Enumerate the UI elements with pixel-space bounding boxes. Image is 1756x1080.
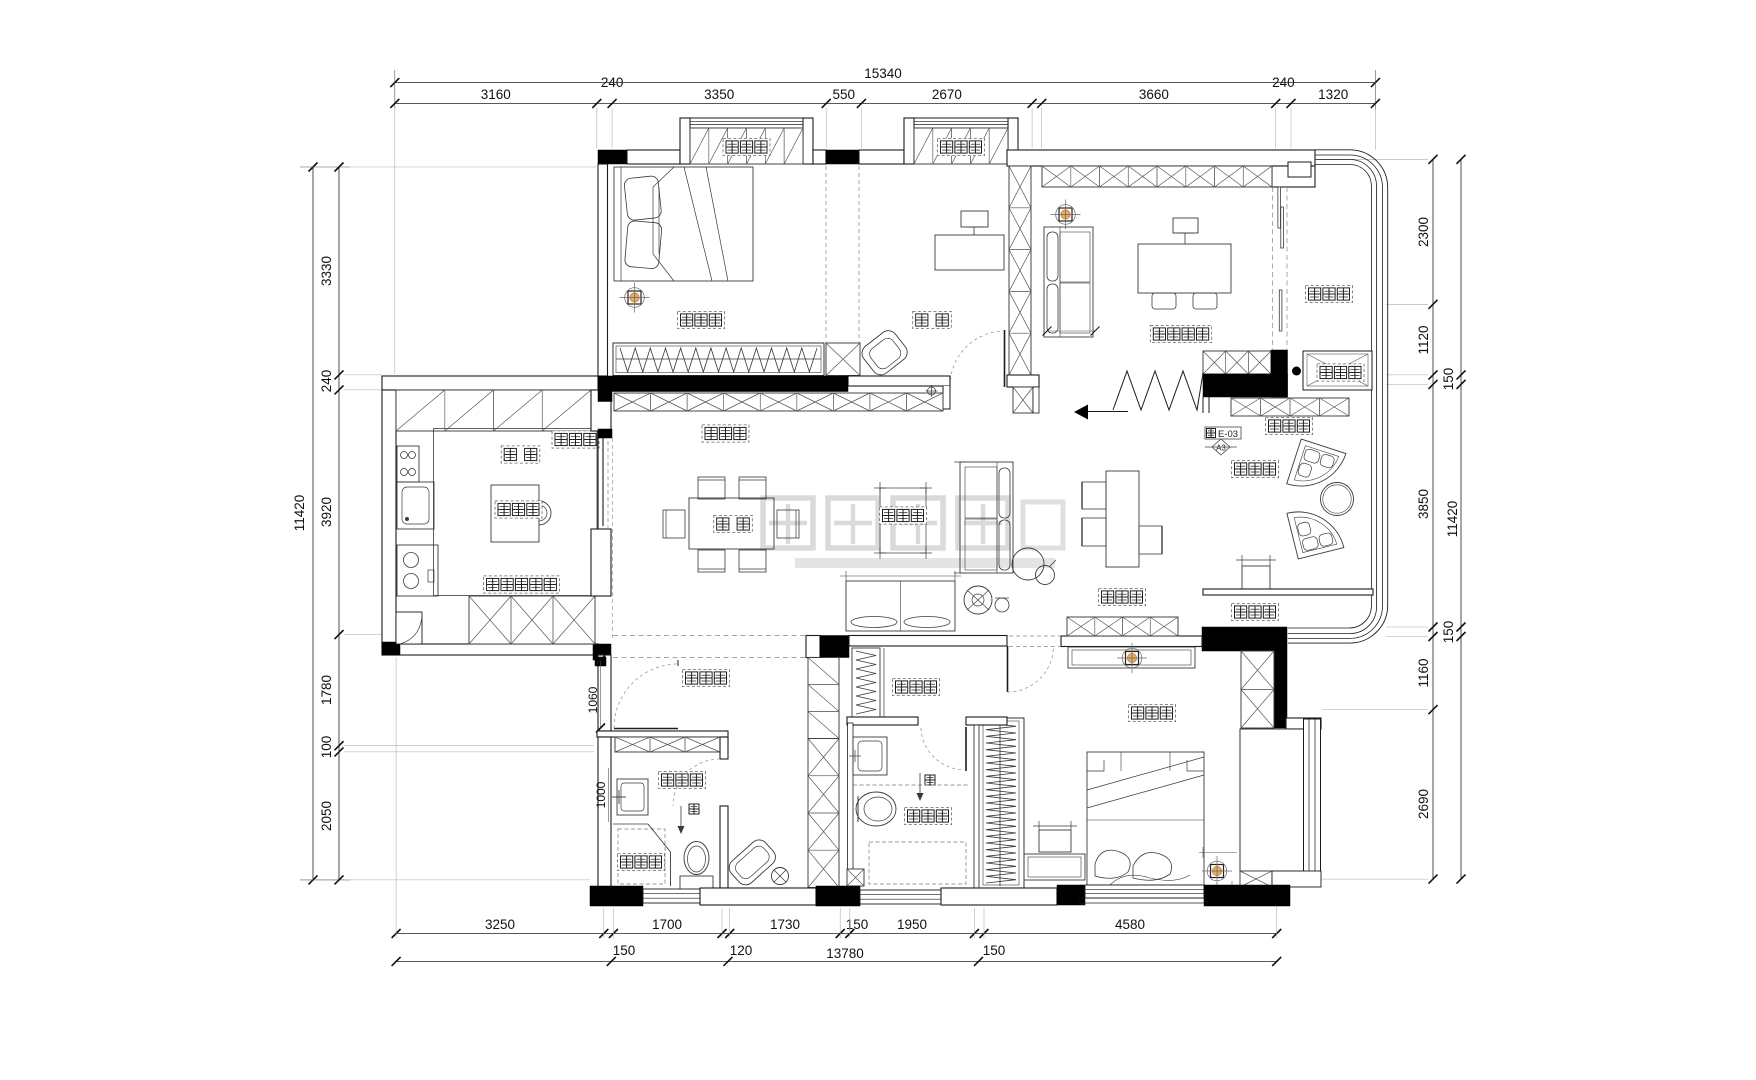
svg-text:1950: 1950	[897, 917, 927, 932]
svg-text:11420: 11420	[292, 495, 307, 532]
svg-text:3330: 3330	[319, 256, 334, 286]
svg-text:3160: 3160	[481, 87, 511, 102]
svg-text:150: 150	[983, 943, 1006, 958]
svg-text:3920: 3920	[319, 497, 334, 527]
svg-text:2300: 2300	[1416, 217, 1431, 247]
svg-text:1700: 1700	[652, 917, 682, 932]
svg-text:4580: 4580	[1115, 917, 1145, 932]
svg-text:3250: 3250	[485, 917, 515, 932]
svg-text:2690: 2690	[1416, 789, 1431, 819]
svg-text:1160: 1160	[1416, 658, 1431, 687]
svg-text:150: 150	[1441, 621, 1456, 644]
svg-text:E-03: E-03	[1218, 429, 1238, 440]
svg-text:120: 120	[730, 943, 753, 958]
svg-text:2670: 2670	[932, 87, 962, 102]
svg-text:1320: 1320	[1318, 87, 1348, 102]
svg-text:3350: 3350	[704, 87, 734, 102]
svg-text:1730: 1730	[770, 917, 800, 932]
svg-text:550: 550	[833, 87, 856, 102]
svg-text:1120: 1120	[1416, 325, 1431, 354]
svg-text:240: 240	[319, 370, 334, 393]
svg-text:15340: 15340	[864, 66, 902, 81]
svg-text:A3: A3	[1216, 444, 1226, 453]
svg-text:3660: 3660	[1139, 87, 1169, 102]
svg-text:1780: 1780	[319, 675, 334, 705]
svg-text:100: 100	[319, 736, 334, 759]
svg-text:150: 150	[613, 943, 636, 958]
svg-text:13780: 13780	[826, 946, 864, 961]
svg-text:11420: 11420	[1445, 501, 1460, 538]
svg-text:240: 240	[601, 75, 624, 90]
svg-text:1000: 1000	[594, 781, 608, 808]
svg-text:150: 150	[1441, 368, 1456, 391]
svg-text:150: 150	[846, 917, 869, 932]
svg-text:240: 240	[1272, 75, 1295, 90]
svg-text:3850: 3850	[1416, 489, 1431, 519]
svg-text:2050: 2050	[319, 801, 334, 831]
svg-text:1060: 1060	[586, 686, 600, 713]
